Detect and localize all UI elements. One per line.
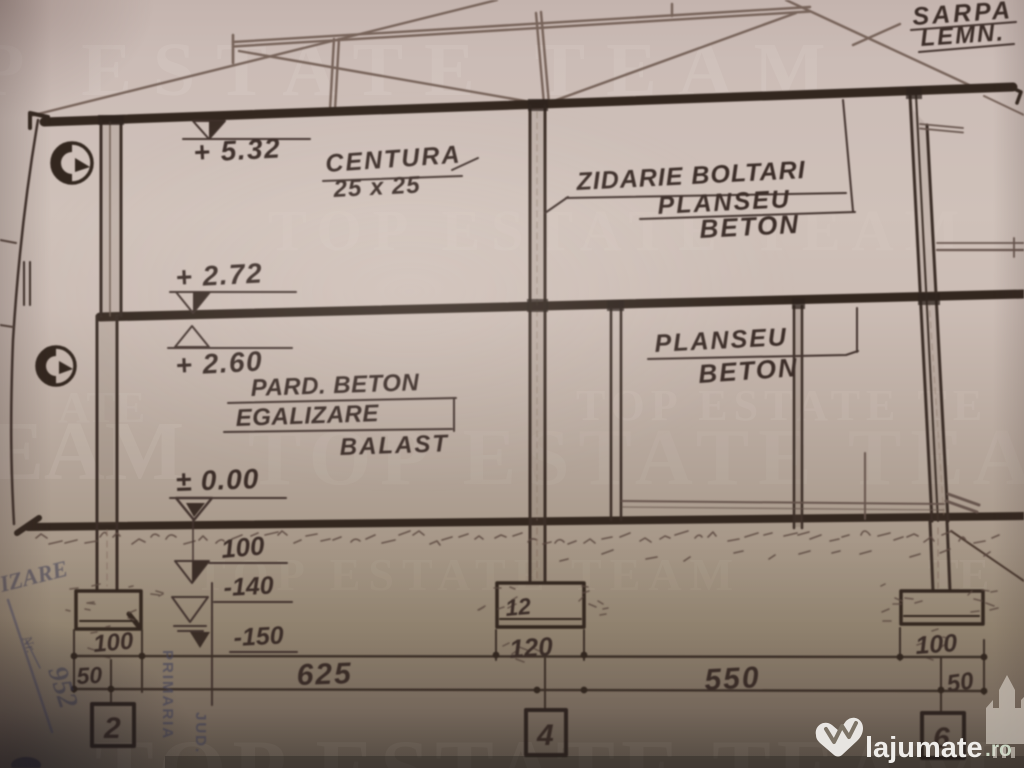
svg-text:lajumate: lajumate [865,732,983,764]
